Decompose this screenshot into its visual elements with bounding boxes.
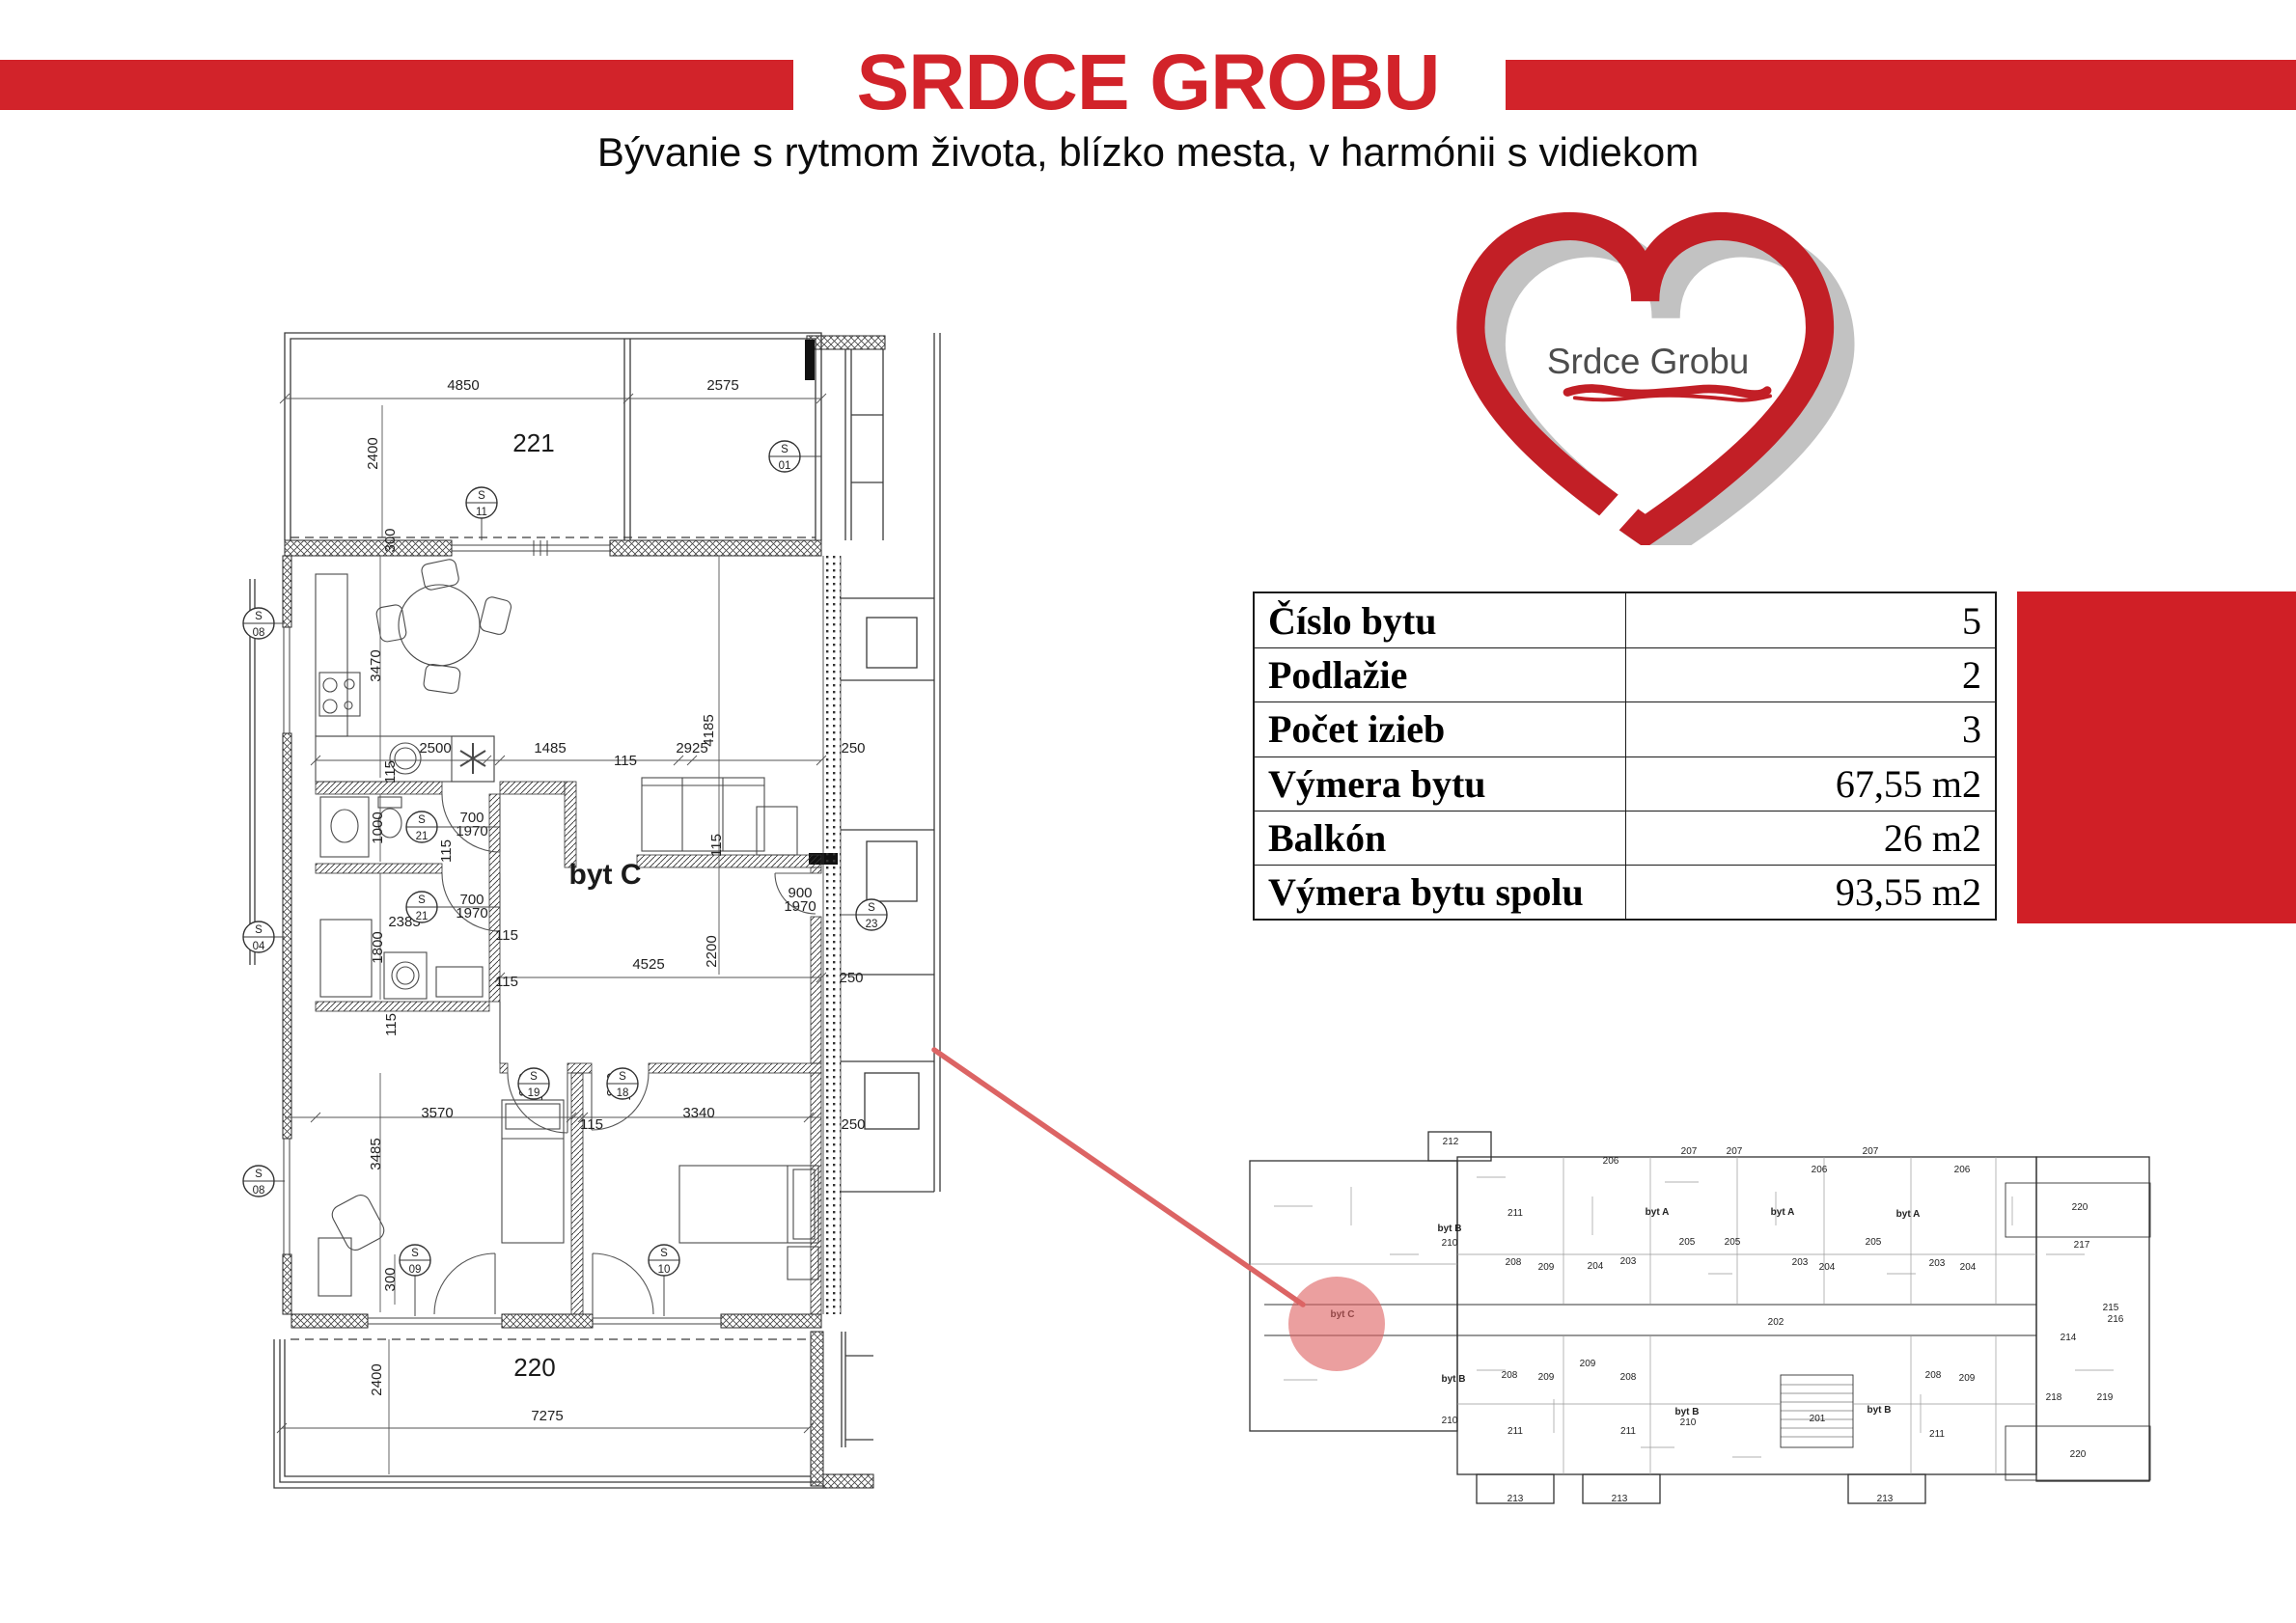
svg-text:S: S bbox=[255, 611, 263, 622]
svg-text:205: 205 bbox=[1679, 1237, 1696, 1248]
svg-text:250: 250 bbox=[839, 970, 863, 986]
svg-text:205: 205 bbox=[1725, 1237, 1741, 1248]
svg-text:1485: 1485 bbox=[534, 740, 566, 756]
svg-text:205: 205 bbox=[1866, 1237, 1882, 1248]
wardrobe bbox=[320, 920, 372, 997]
svg-text:219: 219 bbox=[2097, 1392, 2114, 1403]
flyer-page: SRDCE GROBU Bývanie s rytmom života, blí… bbox=[0, 0, 2296, 1623]
unit-highlight-circle bbox=[1288, 1277, 1385, 1371]
dining-table bbox=[399, 585, 480, 666]
washing-machine bbox=[384, 952, 427, 999]
svg-text:208: 208 bbox=[1502, 1370, 1518, 1381]
svg-text:2200: 2200 bbox=[704, 935, 720, 967]
svg-text:byt B: byt B bbox=[1438, 1224, 1462, 1234]
svg-text:S: S bbox=[530, 1071, 538, 1083]
svg-text:1970: 1970 bbox=[456, 823, 487, 839]
svg-text:220: 220 bbox=[2070, 1449, 2087, 1460]
svg-text:210: 210 bbox=[1442, 1238, 1458, 1249]
sofa bbox=[642, 778, 764, 851]
overview-unit-labels: 212207207207206206206220211byt B210byt A… bbox=[1331, 1137, 2124, 1504]
svg-text:byt B: byt B bbox=[1867, 1405, 1892, 1416]
svg-text:115: 115 bbox=[708, 834, 725, 857]
svg-text:250: 250 bbox=[841, 740, 865, 756]
svg-text:4525: 4525 bbox=[632, 956, 664, 973]
svg-text:115: 115 bbox=[382, 760, 399, 784]
table-row: Podlažie 2 bbox=[1255, 647, 1995, 701]
svg-text:08: 08 bbox=[253, 627, 265, 639]
svg-text:221: 221 bbox=[512, 428, 554, 457]
svg-text:21: 21 bbox=[416, 911, 429, 922]
row-value: 93,55 m2 bbox=[1626, 866, 1995, 919]
svg-text:S: S bbox=[255, 924, 263, 936]
svg-text:2400: 2400 bbox=[369, 1363, 385, 1395]
row-value: 67,55 m2 bbox=[1626, 757, 1995, 811]
svg-text:byt A: byt A bbox=[1646, 1207, 1670, 1218]
svg-text:23: 23 bbox=[866, 919, 878, 930]
svg-text:206: 206 bbox=[1812, 1165, 1828, 1175]
svg-text:08: 08 bbox=[253, 1185, 265, 1197]
svg-text:1970: 1970 bbox=[784, 898, 816, 915]
plan-section-markers: S11S01S08S04S08S21S21S23S19S18S09S10 bbox=[243, 441, 887, 1316]
svg-text:7275: 7275 bbox=[531, 1408, 563, 1424]
svg-text:115: 115 bbox=[383, 1013, 400, 1036]
svg-text:04: 04 bbox=[253, 941, 265, 952]
svg-text:210: 210 bbox=[1680, 1417, 1697, 1428]
row-label: Výmera bytu bbox=[1255, 757, 1626, 811]
apartment-info-table: Číslo bytu 5 Podlažie 2 Počet izieb 3 Vý… bbox=[1253, 591, 1997, 921]
svg-text:216: 216 bbox=[2108, 1314, 2124, 1325]
building-overview-plan: 212207207207206206206220211byt B210byt A… bbox=[1235, 1124, 2162, 1520]
svg-text:201: 201 bbox=[1810, 1414, 1826, 1424]
svg-text:1000: 1000 bbox=[370, 811, 386, 843]
svg-text:2400: 2400 bbox=[365, 437, 381, 469]
svg-text:byt B: byt B bbox=[1442, 1374, 1466, 1385]
bath-vanity bbox=[320, 797, 369, 857]
office-chair bbox=[329, 1192, 388, 1253]
svg-text:S: S bbox=[418, 894, 426, 906]
table-row: Počet izieb 3 bbox=[1255, 701, 1995, 756]
svg-text:S: S bbox=[418, 814, 426, 826]
table-row: Číslo bytu 5 bbox=[1255, 593, 1995, 647]
svg-text:211: 211 bbox=[1508, 1208, 1523, 1219]
desk bbox=[318, 1238, 351, 1296]
svg-text:214: 214 bbox=[2061, 1333, 2077, 1343]
svg-text:2575: 2575 bbox=[706, 377, 738, 394]
snowflake-icon bbox=[460, 743, 485, 774]
svg-text:208: 208 bbox=[1506, 1257, 1522, 1268]
svg-text:206: 206 bbox=[1954, 1165, 1971, 1175]
row-label: Podlažie bbox=[1255, 648, 1626, 701]
svg-text:byt A: byt A bbox=[1771, 1207, 1795, 1218]
page-title: SRDCE GROBU bbox=[0, 39, 2296, 127]
svg-text:3485: 3485 bbox=[368, 1138, 384, 1169]
svg-text:09: 09 bbox=[409, 1264, 422, 1276]
svg-text:204: 204 bbox=[1588, 1261, 1604, 1272]
svg-text:115: 115 bbox=[495, 974, 518, 990]
svg-text:byt B: byt B bbox=[1675, 1407, 1700, 1417]
svg-text:209: 209 bbox=[1538, 1372, 1555, 1383]
svg-text:209: 209 bbox=[1538, 1262, 1555, 1273]
svg-text:3470: 3470 bbox=[368, 649, 384, 681]
row-value: 5 bbox=[1626, 593, 1995, 647]
row-value: 3 bbox=[1626, 702, 1995, 756]
svg-text:213: 213 bbox=[1877, 1494, 1894, 1504]
table-row: Výmera bytu 67,55 m2 bbox=[1255, 756, 1995, 811]
svg-text:4850: 4850 bbox=[447, 377, 479, 394]
cabinet bbox=[757, 807, 797, 855]
svg-text:115: 115 bbox=[580, 1116, 603, 1133]
svg-text:204: 204 bbox=[1819, 1262, 1836, 1273]
svg-text:203: 203 bbox=[1929, 1258, 1946, 1269]
svg-text:208: 208 bbox=[1620, 1372, 1637, 1383]
cooktop bbox=[319, 673, 360, 716]
svg-text:S: S bbox=[619, 1071, 626, 1083]
row-value: 2 bbox=[1626, 648, 1995, 701]
svg-text:220: 220 bbox=[513, 1353, 555, 1382]
svg-text:115: 115 bbox=[495, 927, 518, 944]
chair bbox=[479, 595, 512, 635]
svg-text:115: 115 bbox=[438, 839, 455, 863]
svg-text:S: S bbox=[660, 1248, 668, 1259]
svg-text:1970: 1970 bbox=[456, 905, 487, 922]
svg-text:300: 300 bbox=[382, 528, 399, 552]
svg-text:215: 215 bbox=[2103, 1303, 2119, 1313]
svg-text:2500: 2500 bbox=[419, 740, 451, 756]
svg-text:S: S bbox=[781, 444, 788, 455]
kitchen-counter bbox=[316, 574, 347, 736]
svg-text:207: 207 bbox=[1727, 1146, 1743, 1157]
heart-logo: Srdce Grobu bbox=[1404, 207, 1867, 545]
building-outline bbox=[1250, 1132, 2150, 1503]
svg-text:S: S bbox=[255, 1169, 263, 1180]
svg-text:206: 206 bbox=[1603, 1156, 1619, 1167]
svg-text:10: 10 bbox=[658, 1264, 671, 1276]
svg-text:3340: 3340 bbox=[682, 1105, 714, 1121]
svg-text:220: 220 bbox=[2072, 1202, 2089, 1213]
svg-text:S: S bbox=[411, 1248, 419, 1259]
logo-underline-scribble bbox=[1567, 389, 1767, 395]
svg-text:1800: 1800 bbox=[370, 931, 386, 963]
svg-text:byt C: byt C bbox=[569, 859, 642, 891]
table-row: Balkón 26 m2 bbox=[1255, 811, 1995, 865]
double-bed bbox=[679, 1166, 818, 1243]
svg-text:213: 213 bbox=[1508, 1494, 1524, 1504]
svg-text:202: 202 bbox=[1768, 1317, 1784, 1328]
svg-text:250: 250 bbox=[841, 1116, 865, 1133]
chair bbox=[421, 559, 460, 591]
row-label: Balkón bbox=[1255, 811, 1626, 865]
svg-text:300: 300 bbox=[382, 1267, 399, 1291]
accent-red-block bbox=[2017, 591, 2296, 923]
svg-text:211: 211 bbox=[1508, 1426, 1523, 1437]
svg-text:203: 203 bbox=[1620, 1256, 1637, 1267]
svg-text:21: 21 bbox=[416, 831, 429, 842]
svg-text:01: 01 bbox=[779, 460, 791, 472]
svg-text:byt A: byt A bbox=[1896, 1209, 1921, 1220]
svg-text:115: 115 bbox=[614, 753, 637, 769]
svg-text:18: 18 bbox=[617, 1087, 629, 1099]
svg-text:19: 19 bbox=[528, 1087, 540, 1099]
page-subtitle: Bývanie s rytmom života, blízko mesta, v… bbox=[0, 129, 2296, 176]
svg-text:S: S bbox=[868, 902, 875, 914]
svg-text:208: 208 bbox=[1925, 1370, 1942, 1381]
svg-text:211: 211 bbox=[1620, 1426, 1636, 1437]
plan-dimension-labels: 4850257524003003470418525001151485115292… bbox=[365, 377, 866, 1424]
row-label: Počet izieb bbox=[1255, 702, 1626, 756]
svg-text:209: 209 bbox=[1959, 1373, 1976, 1384]
dryer bbox=[436, 967, 483, 997]
svg-text:S: S bbox=[478, 490, 485, 502]
svg-text:11: 11 bbox=[476, 507, 487, 518]
svg-text:213: 213 bbox=[1612, 1494, 1628, 1504]
svg-text:3570: 3570 bbox=[421, 1105, 453, 1121]
row-label: Výmera bytu spolu bbox=[1255, 866, 1626, 919]
svg-text:207: 207 bbox=[1863, 1146, 1879, 1157]
svg-text:2925: 2925 bbox=[676, 740, 707, 756]
svg-text:217: 217 bbox=[2074, 1240, 2090, 1251]
svg-text:210: 210 bbox=[1442, 1416, 1458, 1426]
chair bbox=[423, 664, 460, 695]
concrete-wall bbox=[805, 340, 815, 380]
svg-text:218: 218 bbox=[2046, 1392, 2062, 1403]
neighbor-dotted-band bbox=[500, 556, 841, 1314]
washbasin bbox=[331, 810, 358, 842]
table-row: Výmera bytu spolu 93,55 m2 bbox=[1255, 865, 1995, 919]
row-label: Číslo bytu bbox=[1255, 593, 1626, 647]
svg-text:209: 209 bbox=[1580, 1359, 1596, 1369]
row-value: 26 m2 bbox=[1626, 811, 1995, 865]
logo-text: Srdce Grobu bbox=[1547, 342, 1749, 381]
svg-text:207: 207 bbox=[1681, 1146, 1698, 1157]
svg-text:211: 211 bbox=[1929, 1429, 1945, 1440]
svg-text:204: 204 bbox=[1960, 1262, 1977, 1273]
svg-text:203: 203 bbox=[1792, 1257, 1809, 1268]
svg-text:212: 212 bbox=[1443, 1137, 1459, 1147]
apartment-floorplan: 4850257524003003470418525001151485115292… bbox=[241, 318, 955, 1563]
